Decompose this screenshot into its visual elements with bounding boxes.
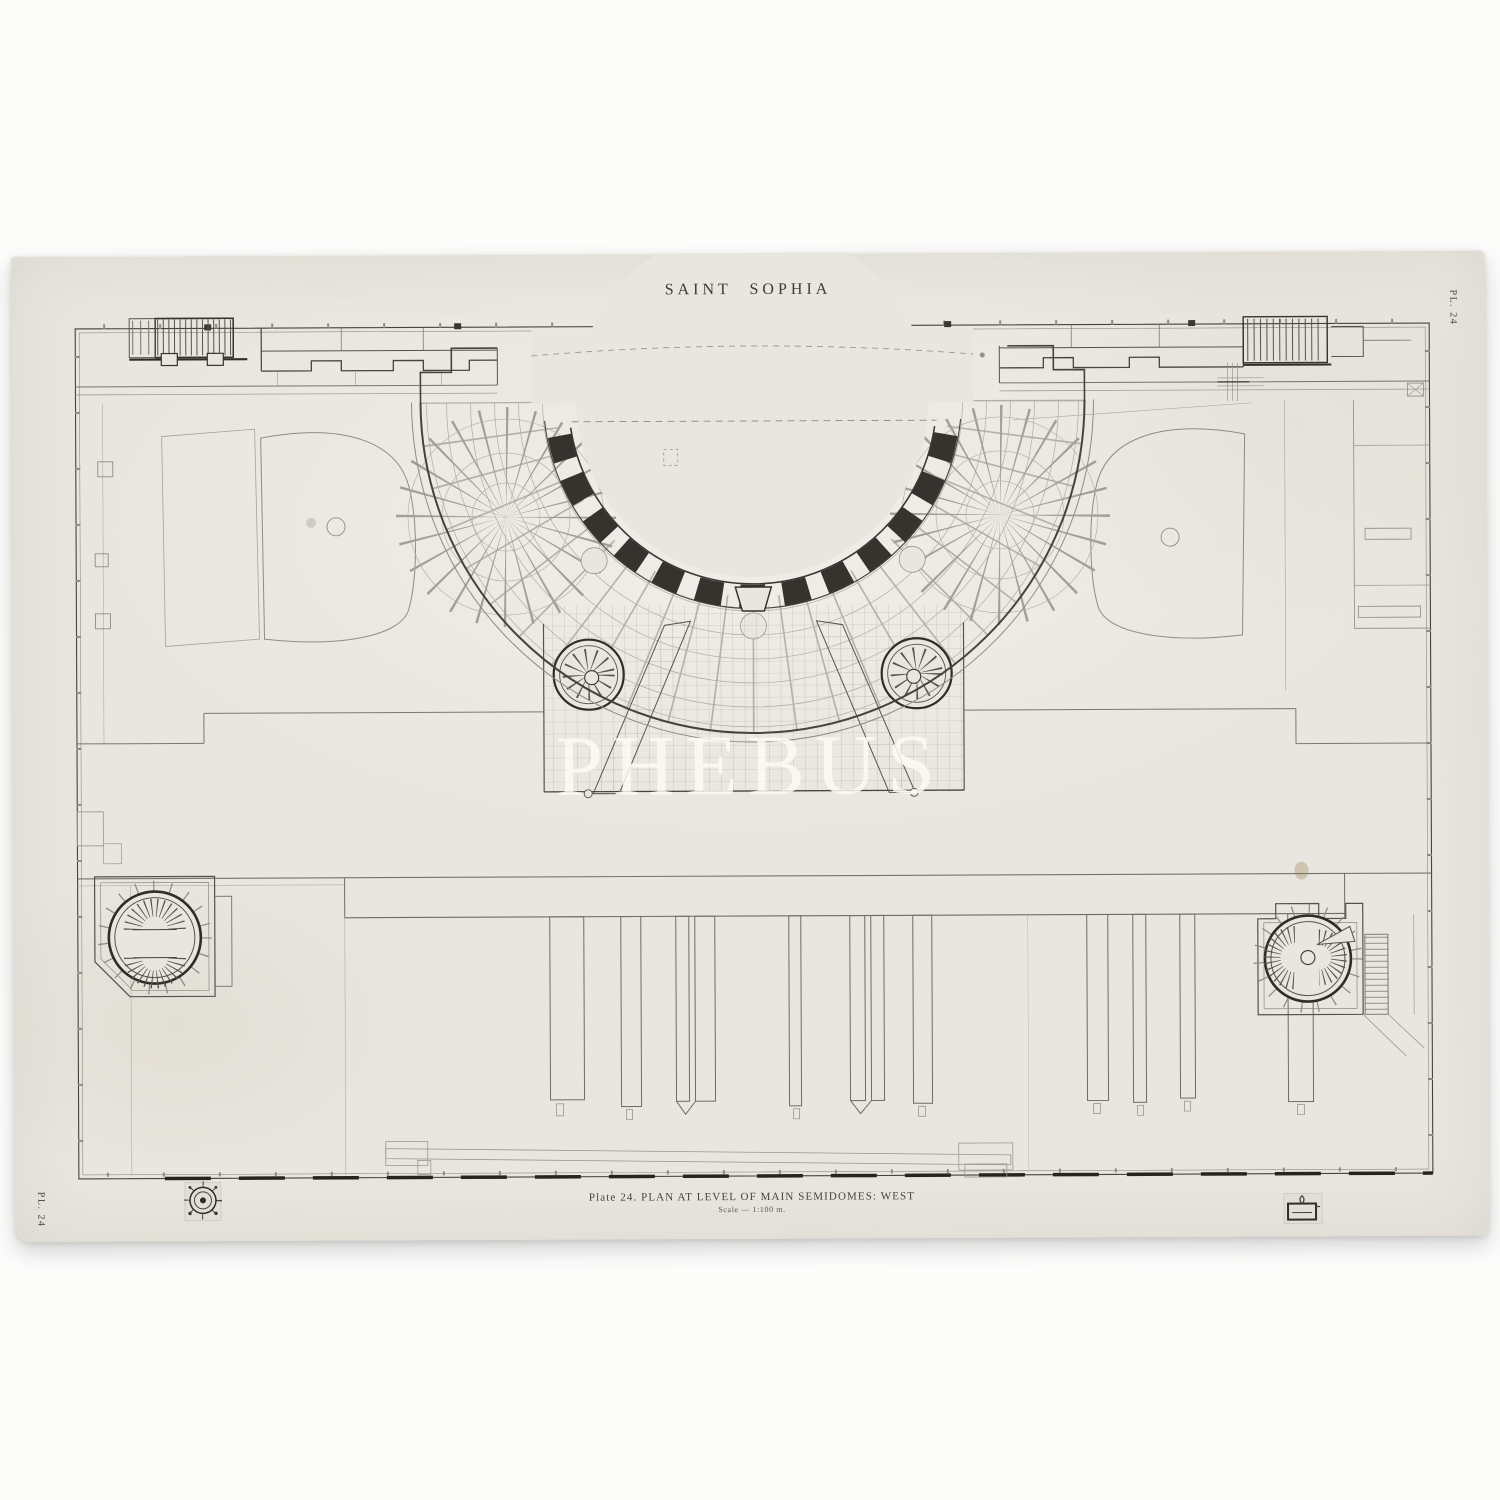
plate-sheet: SAINT SOPHIA PL. 24 PL. 24 Plate 24. PLA…: [11, 250, 1489, 1242]
buttress-piers: [550, 914, 1314, 1120]
photo-background: SAINT SOPHIA PL. 24 PL. 24 Plate 24. PLA…: [0, 0, 1500, 1500]
south-walls: [77, 806, 1433, 1181]
west-buttress-right: [1014, 400, 1431, 692]
west-semidome: [407, 250, 1099, 799]
stair-turret-southwest: [95, 876, 233, 997]
west-buttress-left: [95, 402, 417, 743]
plate-number-top-right: PL. 24: [1448, 290, 1459, 326]
plan-drawing: [11, 250, 1489, 1242]
stair-turret-southeast: [1258, 903, 1425, 1057]
